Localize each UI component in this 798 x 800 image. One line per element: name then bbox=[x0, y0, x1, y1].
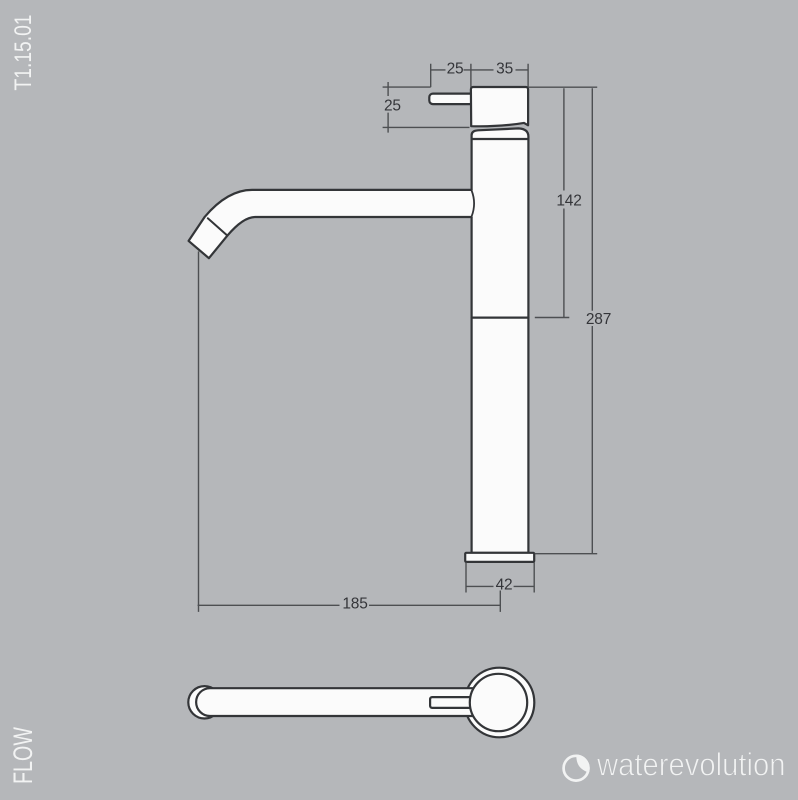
svg-text:25: 25 bbox=[447, 60, 464, 77]
svg-text:142: 142 bbox=[556, 193, 581, 210]
svg-text:287: 287 bbox=[586, 311, 611, 328]
svg-text:35: 35 bbox=[496, 60, 513, 77]
svg-text:FLOW: FLOW bbox=[8, 727, 38, 784]
svg-text:T1.15.01: T1.15.01 bbox=[10, 15, 37, 91]
svg-text:waterevolution: waterevolution bbox=[596, 746, 785, 782]
svg-text:42: 42 bbox=[496, 577, 513, 594]
svg-text:185: 185 bbox=[342, 596, 367, 613]
svg-text:25: 25 bbox=[384, 98, 401, 115]
